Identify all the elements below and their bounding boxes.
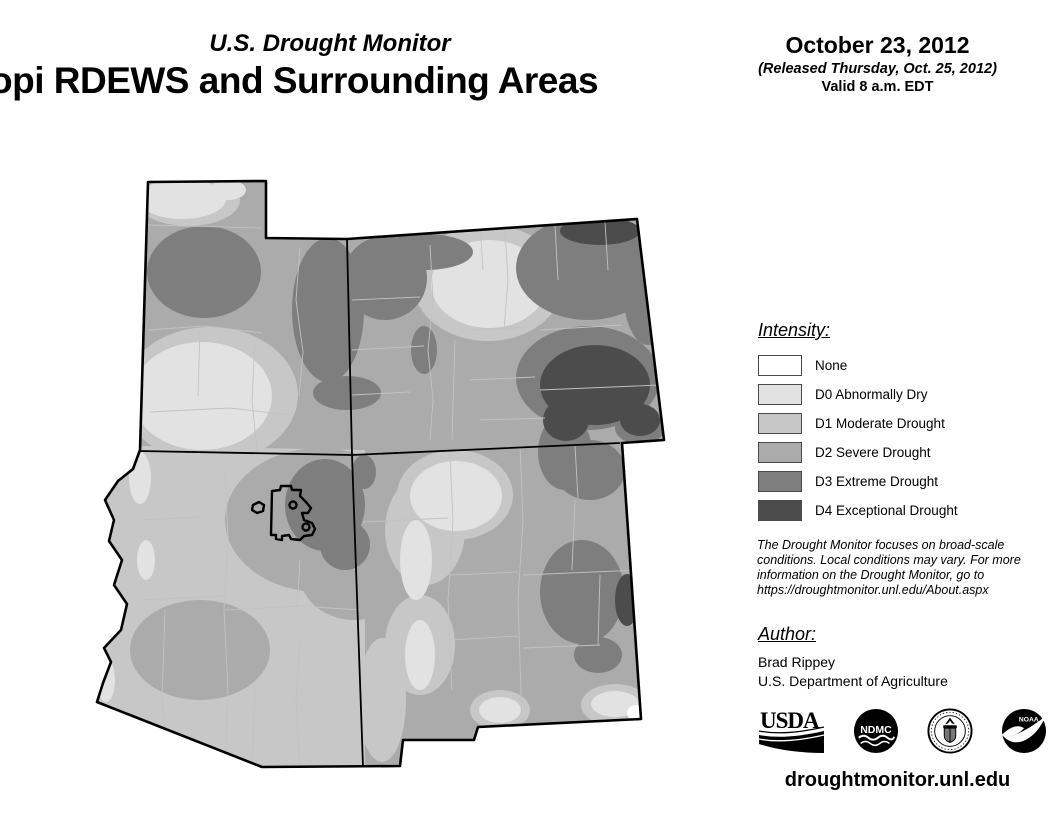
legend-row-none: None bbox=[758, 351, 958, 380]
drought-monitor-url: droughtmonitor.unl.edu bbox=[740, 769, 1055, 792]
ndmc-logo-text: NDMC bbox=[860, 724, 892, 736]
map-title: opi RDEWS and Surrounding Areas bbox=[0, 60, 598, 102]
map-date: October 23, 2012 bbox=[705, 32, 1050, 59]
noaa-logo: NOAA bbox=[1001, 708, 1047, 754]
date-block: October 23, 2012 (Released Thursday, Oct… bbox=[705, 32, 1050, 95]
intensity-legend: None D0 Abnormally Dry D1 Moderate Droug… bbox=[758, 351, 958, 525]
drought-monitor-page: U.S. Drought Monitor opi RDEWS and Surro… bbox=[0, 0, 1056, 816]
legend-swatch-none bbox=[758, 355, 802, 376]
usda-logo: USDA bbox=[757, 706, 825, 756]
release-note: (Released Thursday, Oct. 25, 2012) bbox=[705, 61, 1050, 77]
noaa-logo-text: NOAA bbox=[1019, 716, 1039, 723]
legend-swatch-d4 bbox=[758, 500, 802, 521]
legend-row-d4: D4 Exceptional Drought bbox=[758, 496, 958, 525]
drought-intensity-fills bbox=[88, 168, 750, 804]
valid-note: Valid 8 a.m. EDT bbox=[705, 79, 1050, 95]
legend-swatch-d0 bbox=[758, 384, 802, 405]
author-heading: Author: bbox=[758, 624, 816, 645]
legend-swatch-d3 bbox=[758, 471, 802, 492]
agency-logos: USDA NDMC NOAA bbox=[757, 702, 1047, 760]
legend-row-d3: D3 Extreme Drought bbox=[758, 467, 958, 496]
ndmc-logo: NDMC bbox=[853, 708, 899, 754]
drought-map bbox=[88, 168, 750, 804]
us-dept-of-commerce-seal bbox=[927, 708, 973, 754]
legend-heading: Intensity: bbox=[758, 320, 830, 341]
legend-row-d2: D2 Severe Drought bbox=[758, 438, 958, 467]
program-title: U.S. Drought Monitor bbox=[150, 30, 510, 58]
legend-row-d1: D1 Moderate Drought bbox=[758, 409, 958, 438]
author-name: Brad Rippey bbox=[758, 654, 835, 670]
legend-row-d0: D0 Abnormally Dry bbox=[758, 380, 958, 409]
disclaimer-text: The Drought Monitor focuses on broad-sca… bbox=[757, 538, 1047, 598]
legend-swatch-d2 bbox=[758, 442, 802, 463]
legend-swatch-d1 bbox=[758, 413, 802, 434]
author-organization: U.S. Department of Agriculture bbox=[758, 673, 948, 689]
